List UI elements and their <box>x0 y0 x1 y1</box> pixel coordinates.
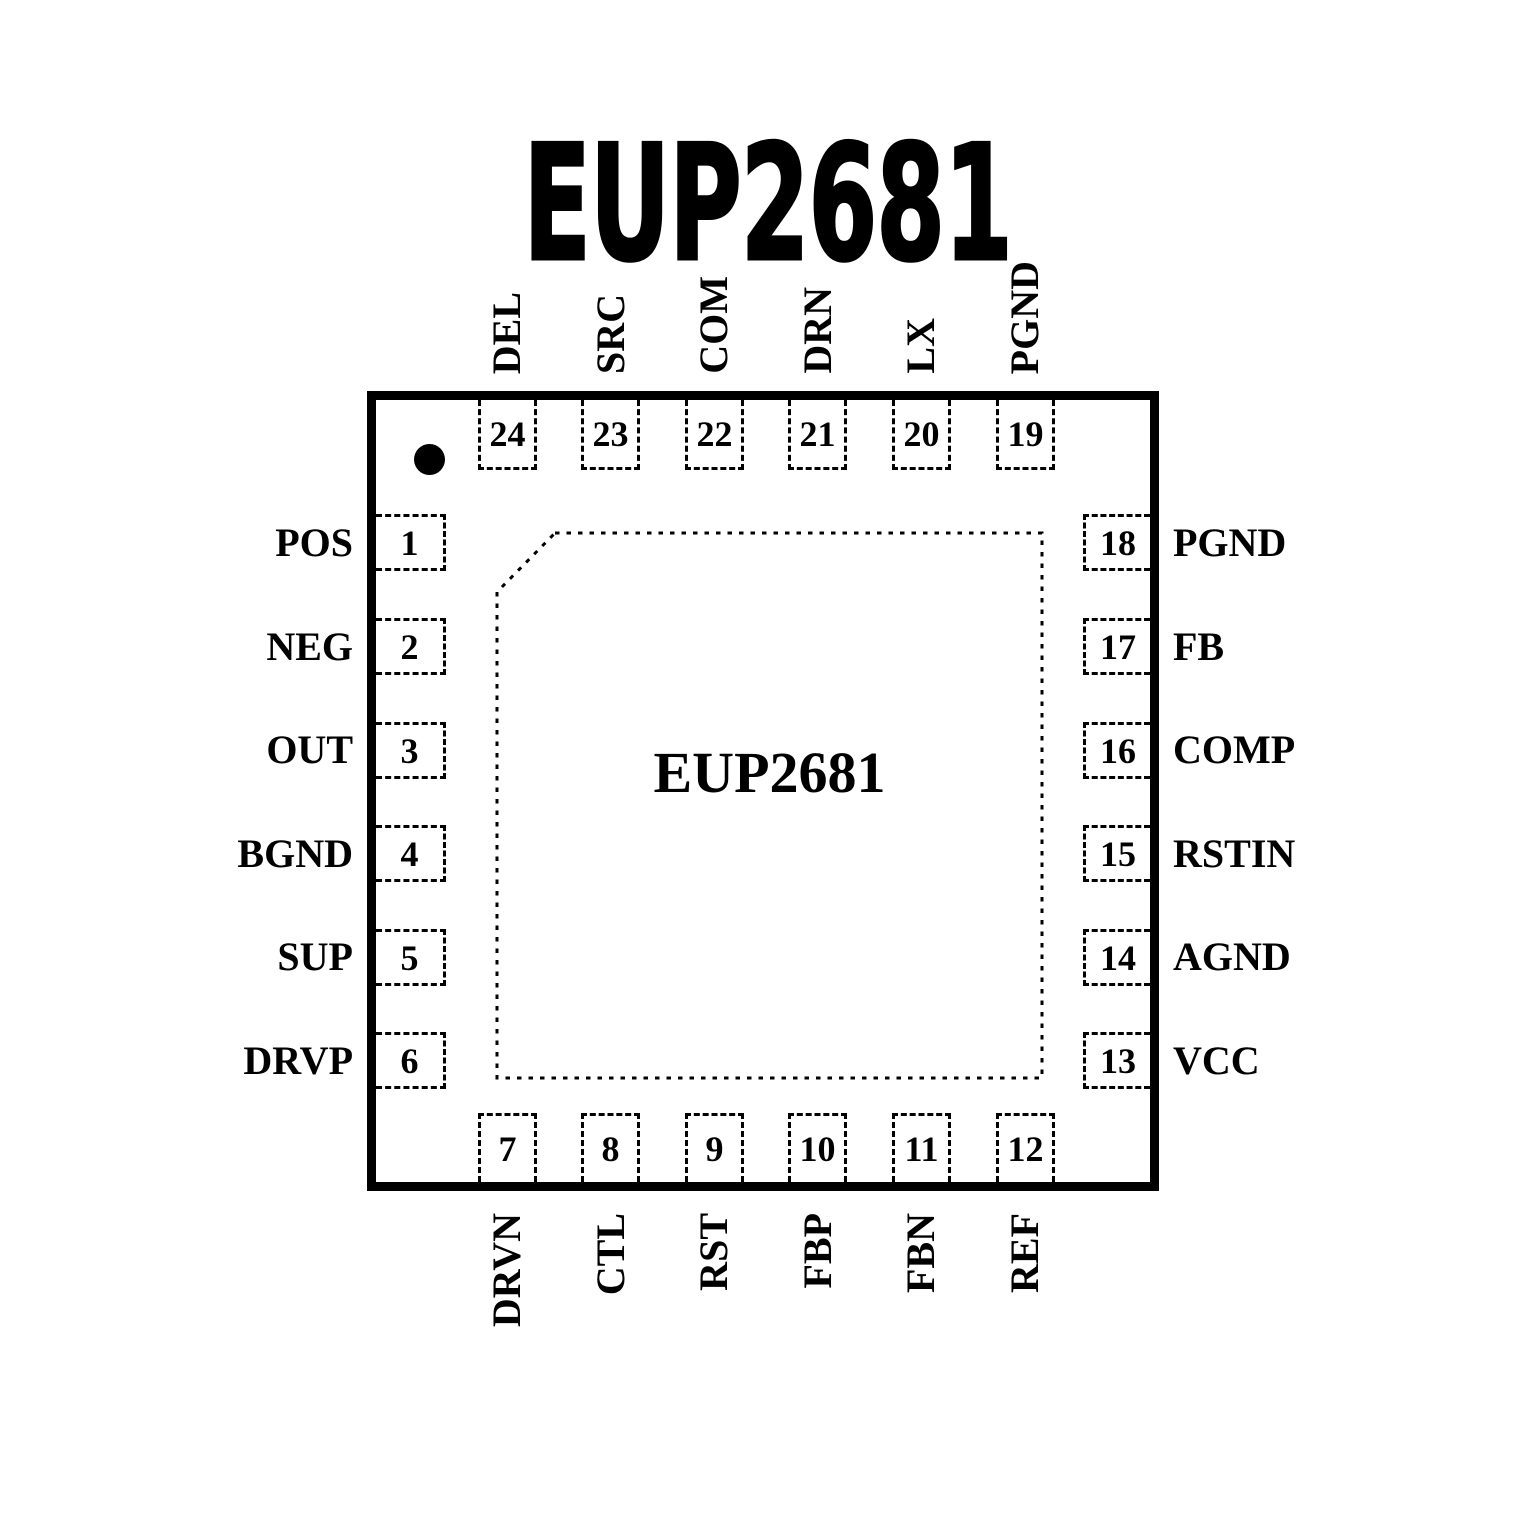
pin-6-label: DRVP <box>243 1039 353 1083</box>
pin-17: 17 <box>1083 618 1150 675</box>
pin-14: 14 <box>1083 929 1150 986</box>
pin-8-label: CTL <box>589 1213 633 1295</box>
pin-8: 8 <box>581 1113 640 1182</box>
pin-23-number: 23 <box>593 413 629 455</box>
pin-3-label: OUT <box>266 728 353 772</box>
pin-16: 16 <box>1083 722 1150 779</box>
pin-1-number: 1 <box>401 522 419 564</box>
pin-5: 5 <box>376 929 446 986</box>
pin-3: 3 <box>376 722 446 779</box>
pin-20-label: LX <box>899 318 943 374</box>
page-title: EUP2681 <box>292 110 1244 297</box>
pinout-diagram: EUP2681 EUP2681 24 23 22 21 20 19 DEL SR… <box>0 0 1535 1535</box>
pin-23-label: SRC <box>589 294 633 374</box>
pin-4-number: 4 <box>401 833 419 875</box>
pin-19-number: 19 <box>1008 413 1044 455</box>
pin-22: 22 <box>685 400 744 470</box>
pin1-indicator-dot <box>414 444 445 475</box>
pin-13-number: 13 <box>1100 1040 1136 1082</box>
pin-6-number: 6 <box>401 1040 419 1082</box>
pin-22-number: 22 <box>697 413 733 455</box>
pin-2: 2 <box>376 618 446 675</box>
pin-4: 4 <box>376 825 446 882</box>
pin-24-label: DEL <box>485 292 529 374</box>
pin-9: 9 <box>685 1113 744 1182</box>
pin-24: 24 <box>478 400 537 470</box>
pin-11: 11 <box>892 1113 951 1182</box>
pin-1-label: POS <box>275 521 353 565</box>
pin-19-label: PGND <box>1003 261 1047 374</box>
pin-21-number: 21 <box>800 413 836 455</box>
pin-23: 23 <box>581 400 640 470</box>
pin-21: 21 <box>788 400 847 470</box>
pin-8-number: 8 <box>602 1128 620 1170</box>
pin-2-label: NEG <box>266 625 353 669</box>
pin-19: 19 <box>996 400 1055 470</box>
pin-20: 20 <box>892 400 951 470</box>
pin-9-number: 9 <box>706 1128 724 1170</box>
pin-14-label: AGND <box>1173 935 1291 979</box>
pin-13: 13 <box>1083 1032 1150 1089</box>
pin-18-number: 18 <box>1100 522 1136 564</box>
pin-15-label: RSTIN <box>1173 832 1295 876</box>
pin-4-label: BGND <box>237 832 353 876</box>
pin-12-label: REF <box>1003 1213 1047 1293</box>
pin-16-label: COMP <box>1173 728 1295 772</box>
chip-name: EUP2681 <box>497 744 1042 802</box>
pin-3-number: 3 <box>401 730 419 772</box>
pin-18: 18 <box>1083 514 1150 571</box>
pin-6: 6 <box>376 1032 446 1089</box>
pin-11-number: 11 <box>904 1128 938 1170</box>
pin-7: 7 <box>478 1113 537 1182</box>
pin-17-number: 17 <box>1100 626 1136 668</box>
pin-7-label: DRVN <box>485 1213 529 1327</box>
die-paddle-outline <box>490 525 1050 1085</box>
pin-14-number: 14 <box>1100 937 1136 979</box>
pin-15-number: 15 <box>1100 833 1136 875</box>
pin-24-number: 24 <box>490 413 526 455</box>
pin-13-label: VCC <box>1173 1039 1260 1083</box>
pin-12-number: 12 <box>1008 1128 1044 1170</box>
pin-16-number: 16 <box>1100 730 1136 772</box>
pin-9-label: RST <box>692 1213 736 1291</box>
pin-11-label: FBN <box>899 1213 943 1293</box>
pin-20-number: 20 <box>904 413 940 455</box>
pin-2-number: 2 <box>401 626 419 668</box>
pin-18-label: PGND <box>1173 521 1286 565</box>
pin-1: 1 <box>376 514 446 571</box>
pin-22-label: COM <box>692 276 736 374</box>
pin-10: 10 <box>788 1113 847 1182</box>
pin-15: 15 <box>1083 825 1150 882</box>
pin-5-label: SUP <box>277 935 353 979</box>
pin-12: 12 <box>996 1113 1055 1182</box>
pin-21-label: DRN <box>796 287 840 374</box>
pin-5-number: 5 <box>401 937 419 979</box>
pin-10-label: FBP <box>796 1213 840 1289</box>
pin-17-label: FB <box>1173 625 1224 669</box>
pin-7-number: 7 <box>499 1128 517 1170</box>
pin-10-number: 10 <box>800 1128 836 1170</box>
